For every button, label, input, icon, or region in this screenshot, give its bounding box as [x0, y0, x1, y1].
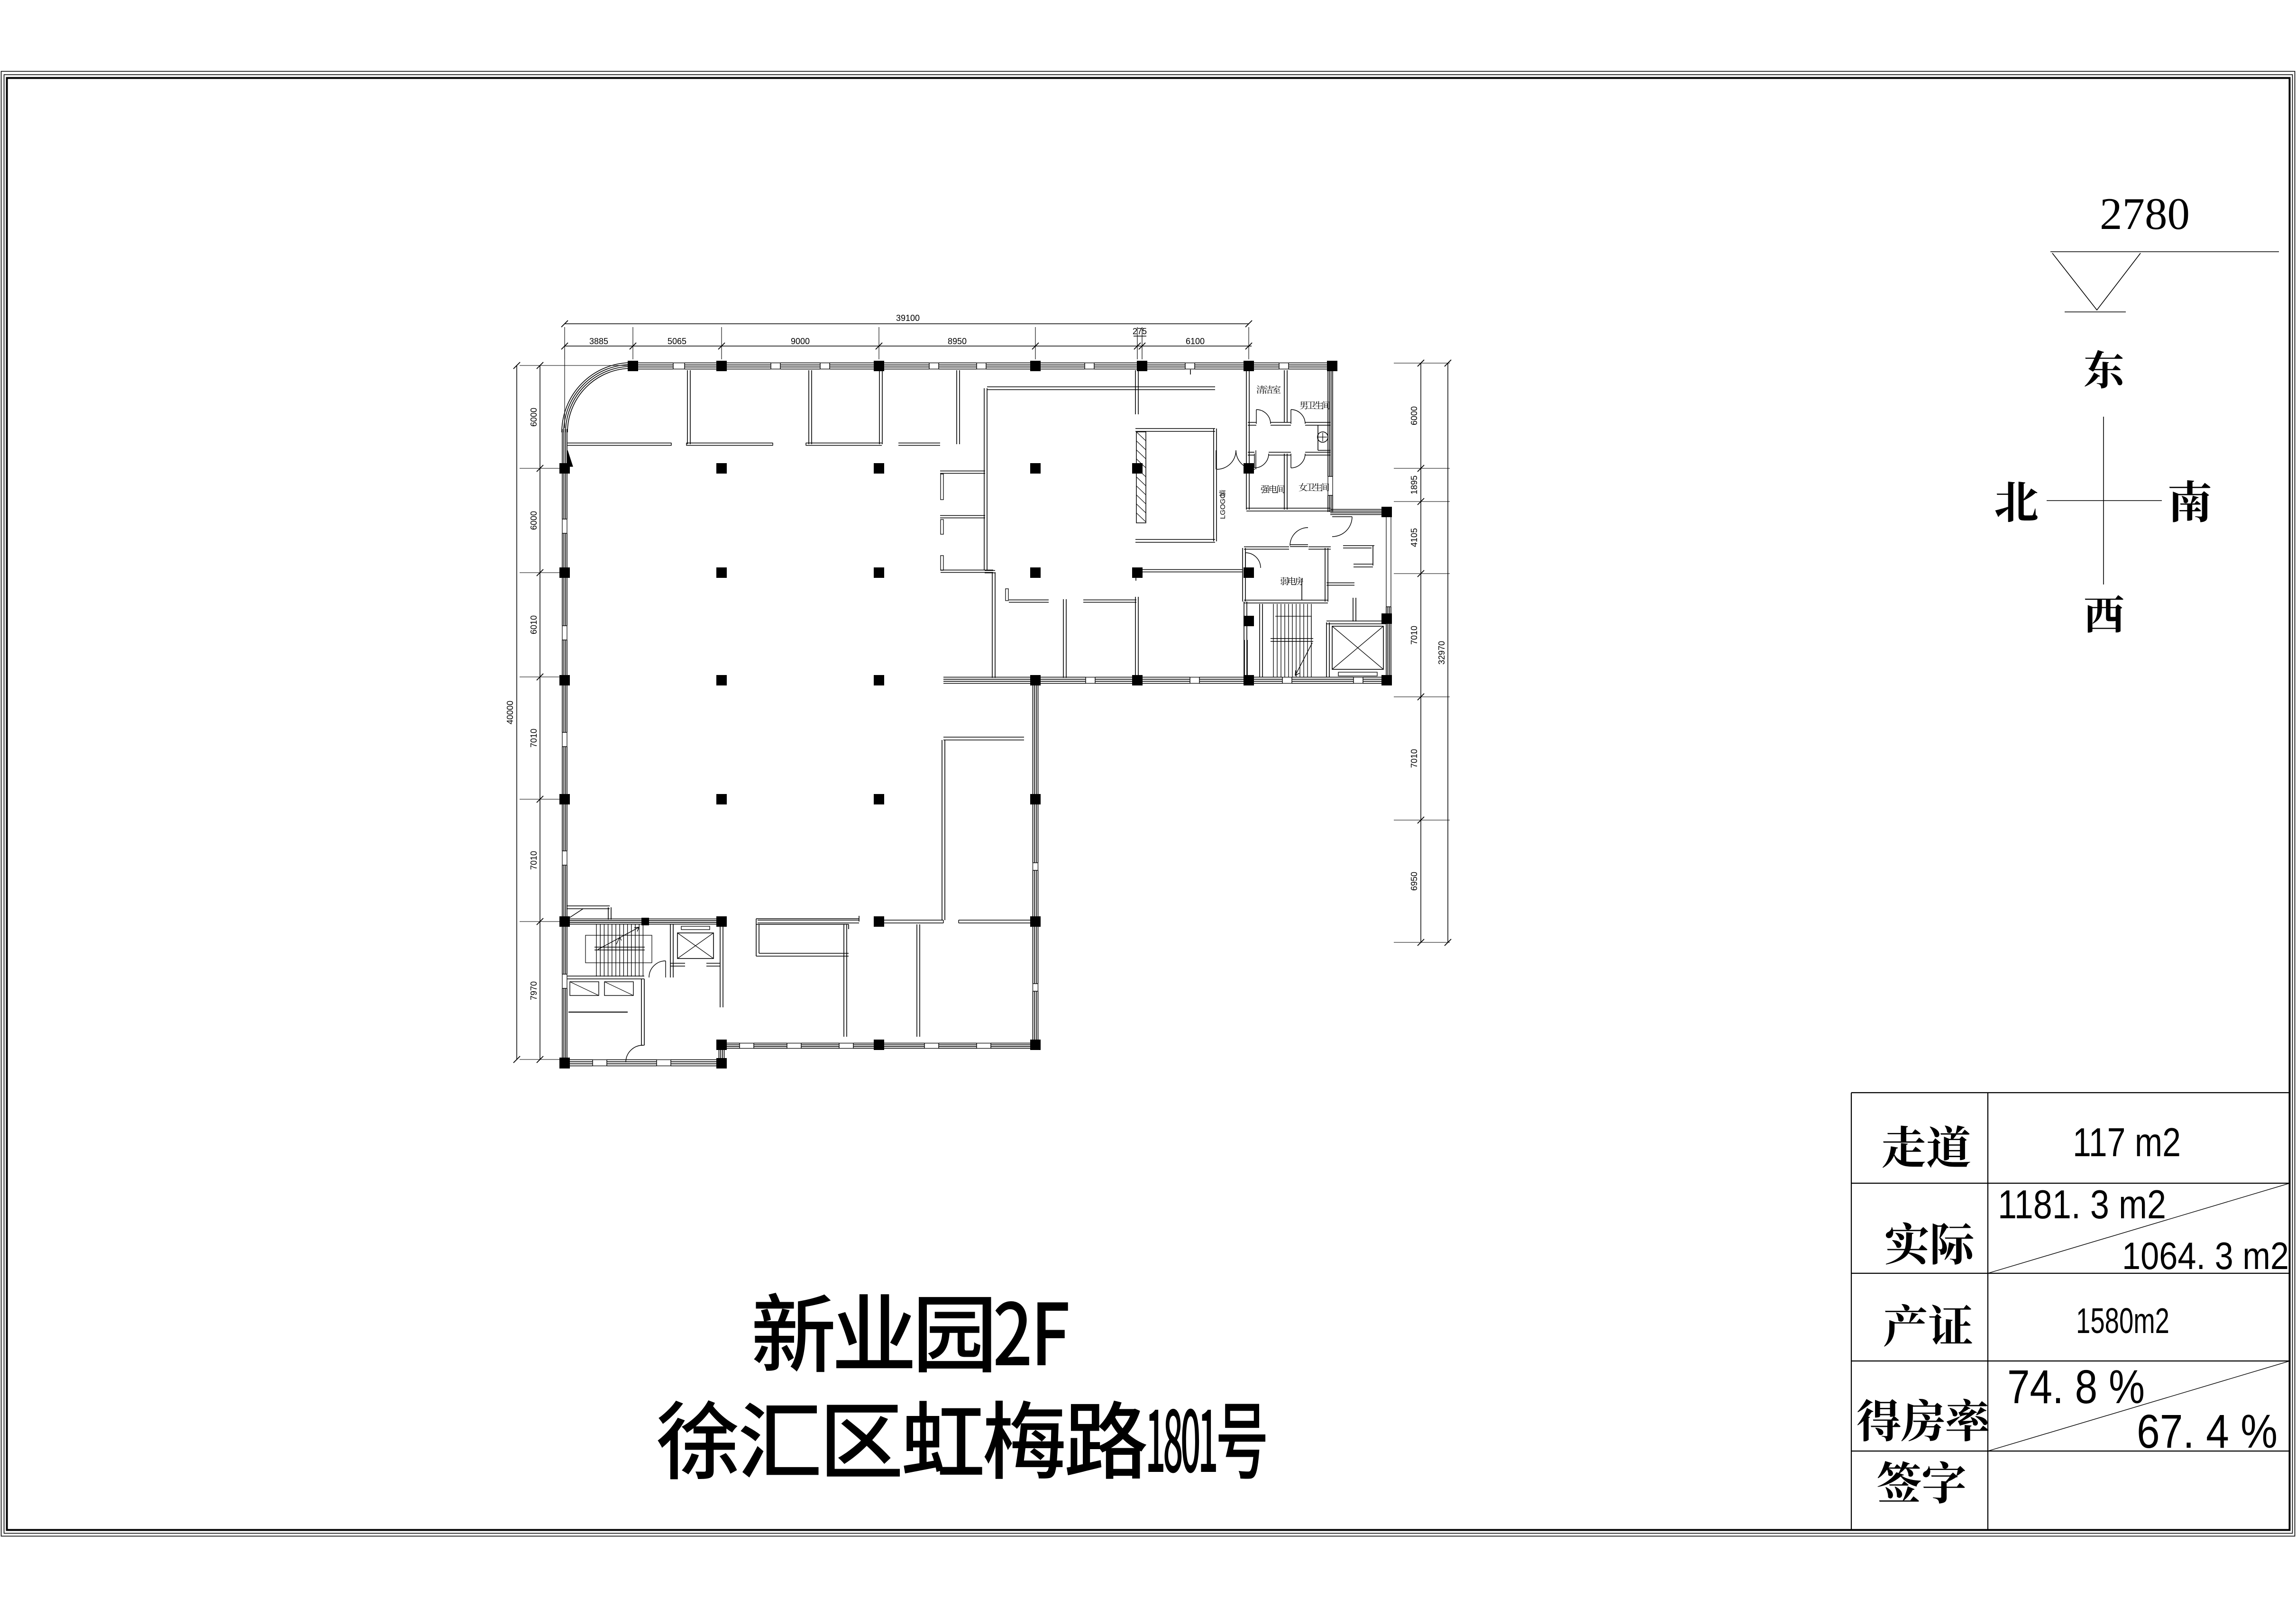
svg-text:2780: 2780 [2100, 189, 2190, 239]
svg-text:6000: 6000 [529, 511, 539, 530]
svg-text:9000: 9000 [791, 337, 810, 346]
svg-text:39100: 39100 [896, 313, 920, 323]
svg-text:6100: 6100 [1186, 337, 1205, 346]
svg-text:3885: 3885 [589, 337, 608, 346]
svg-text:LGOGO: LGOGO [1219, 493, 1227, 519]
svg-text:74. 8 %: 74. 8 % [2007, 1360, 2145, 1414]
svg-text:275: 275 [1133, 327, 1147, 336]
svg-text:7970: 7970 [529, 981, 539, 1000]
svg-text:7010: 7010 [529, 729, 539, 748]
svg-text:117 m2: 117 m2 [2073, 1120, 2181, 1165]
svg-text:32970: 32970 [1437, 641, 1446, 665]
svg-text:7010: 7010 [1409, 749, 1419, 768]
svg-text:8950: 8950 [948, 337, 967, 346]
svg-text:6950: 6950 [1409, 872, 1419, 891]
svg-text:6000: 6000 [529, 408, 539, 427]
svg-text:7010: 7010 [1409, 626, 1419, 645]
svg-text:1064. 3 m2: 1064. 3 m2 [2122, 1235, 2289, 1278]
svg-text:1181. 3 m2: 1181. 3 m2 [1998, 1182, 2166, 1227]
svg-text:67. 4 %: 67. 4 % [2137, 1405, 2278, 1458]
svg-text:6000: 6000 [1409, 406, 1419, 425]
svg-text:1580m2: 1580m2 [2076, 1301, 2169, 1341]
svg-text:1895: 1895 [1409, 475, 1419, 494]
svg-text:5065: 5065 [668, 337, 686, 346]
svg-text:6010: 6010 [529, 615, 539, 634]
svg-text:7010: 7010 [529, 851, 539, 870]
svg-text:4105: 4105 [1409, 528, 1419, 547]
svg-text:40000: 40000 [505, 701, 515, 724]
